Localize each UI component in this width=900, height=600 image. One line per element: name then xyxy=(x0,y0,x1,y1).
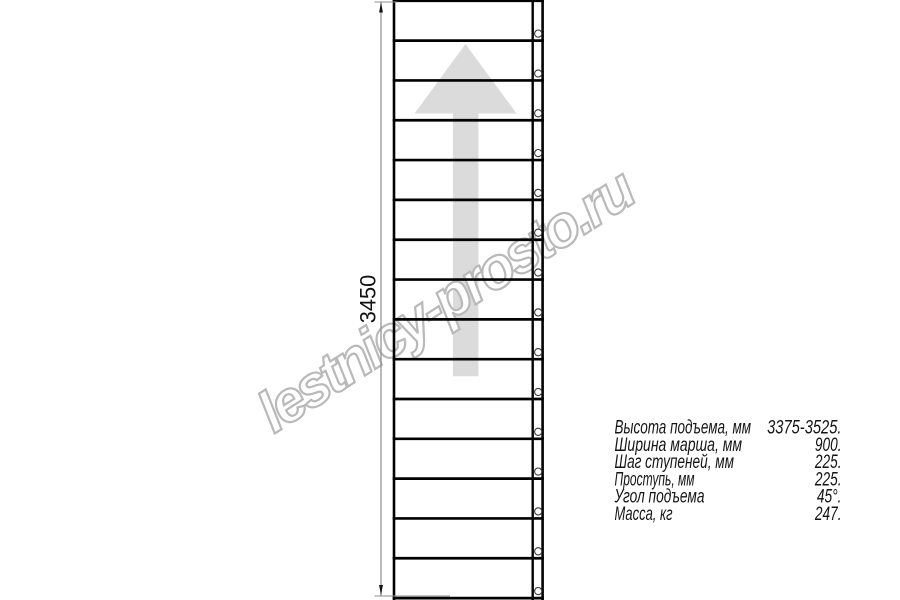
svg-text:Масса, кг: Масса, кг xyxy=(615,504,673,525)
svg-text:247.: 247. xyxy=(814,504,841,525)
svg-text:3450: 3450 xyxy=(356,275,381,324)
